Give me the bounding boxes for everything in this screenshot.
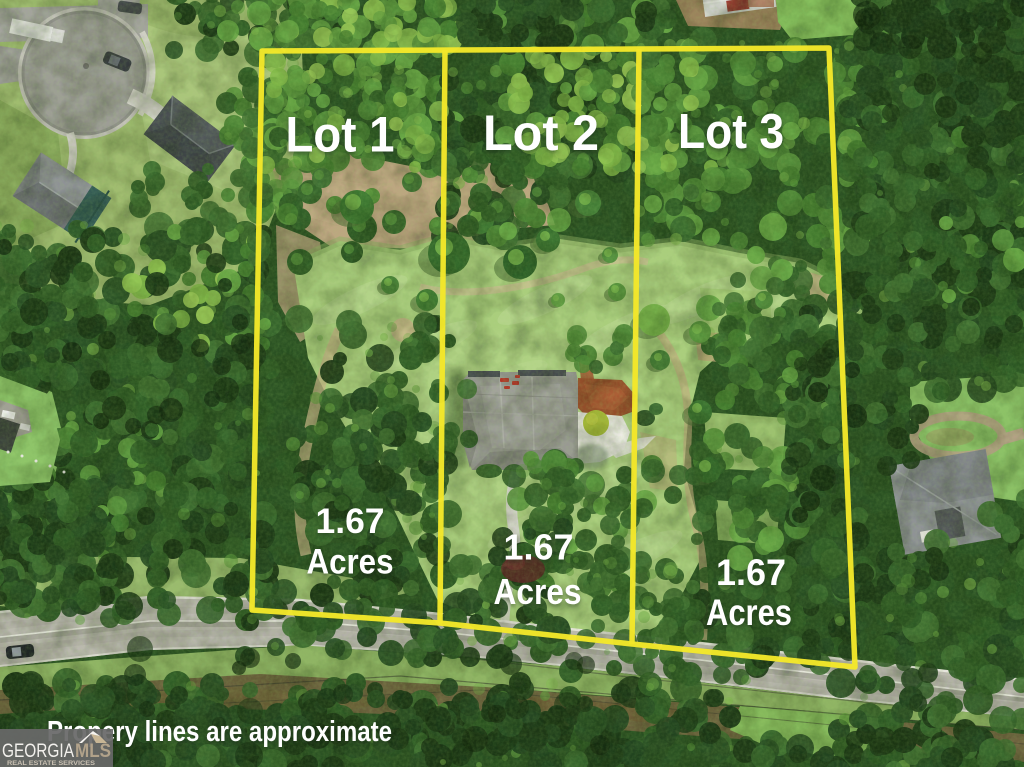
svg-text:Lot 2: Lot 2 xyxy=(483,105,599,161)
svg-text:1.67: 1.67 xyxy=(316,502,385,541)
svg-text:GEORGIA: GEORGIA xyxy=(2,741,74,762)
svg-text:1.67: 1.67 xyxy=(504,527,574,568)
svg-text:MLS: MLS xyxy=(75,741,111,762)
svg-text:Lot 1: Lot 1 xyxy=(286,107,395,163)
svg-text:1.67: 1.67 xyxy=(716,552,786,593)
svg-text:Acres: Acres xyxy=(307,543,394,582)
svg-text:Acres: Acres xyxy=(706,592,792,633)
svg-text:Acres: Acres xyxy=(494,571,582,612)
svg-text:REAL ESTATE SERVICES: REAL ESTATE SERVICES xyxy=(7,760,96,767)
svg-text:Lot 3: Lot 3 xyxy=(678,105,784,159)
